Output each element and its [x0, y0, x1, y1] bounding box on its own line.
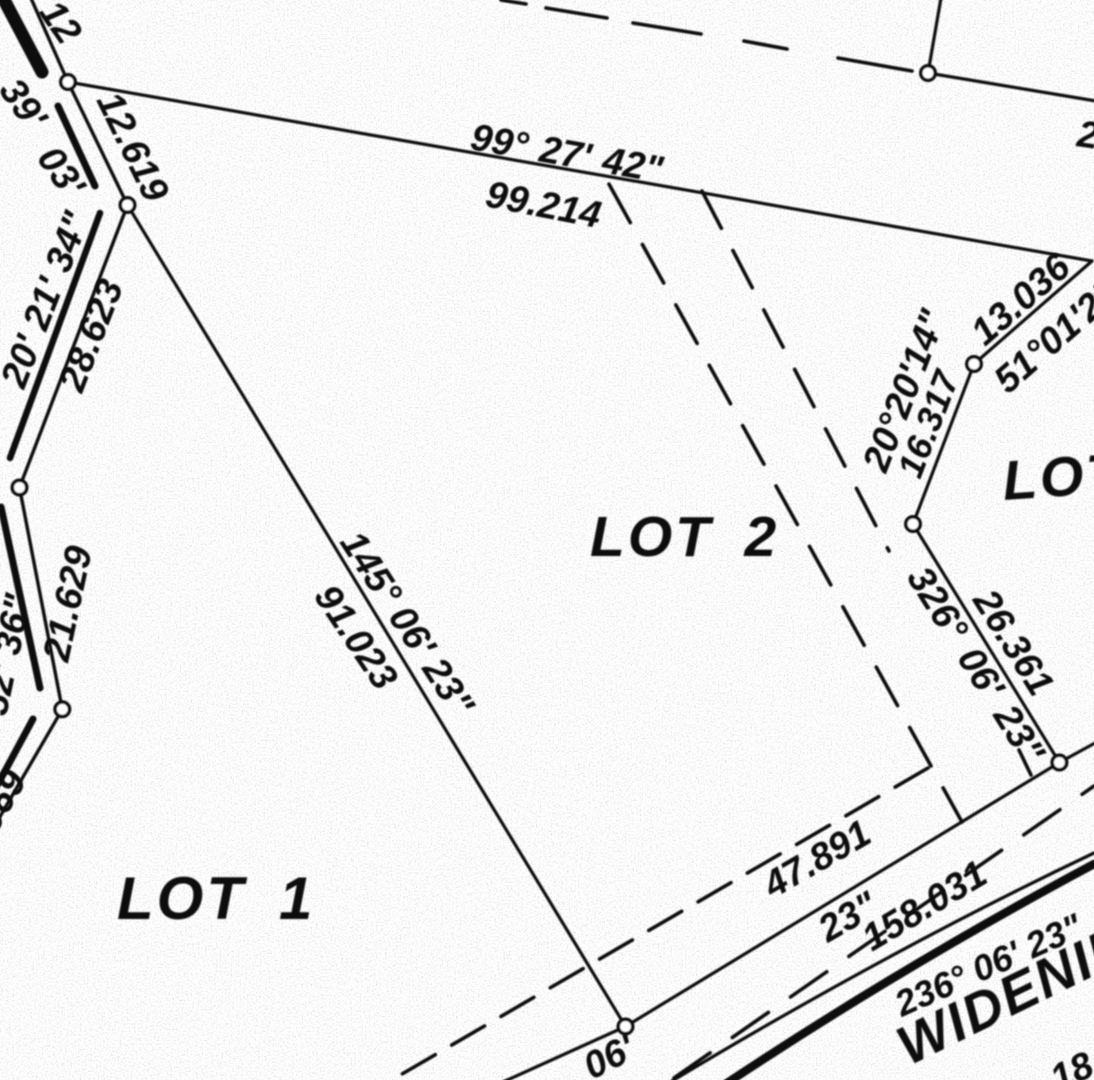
svg-text:LOT 3: LOT 3 — [1000, 436, 1094, 512]
svg-text:LOT 2: LOT 2 — [590, 505, 779, 569]
svg-text:LOT 1: LOT 1 — [117, 865, 315, 932]
